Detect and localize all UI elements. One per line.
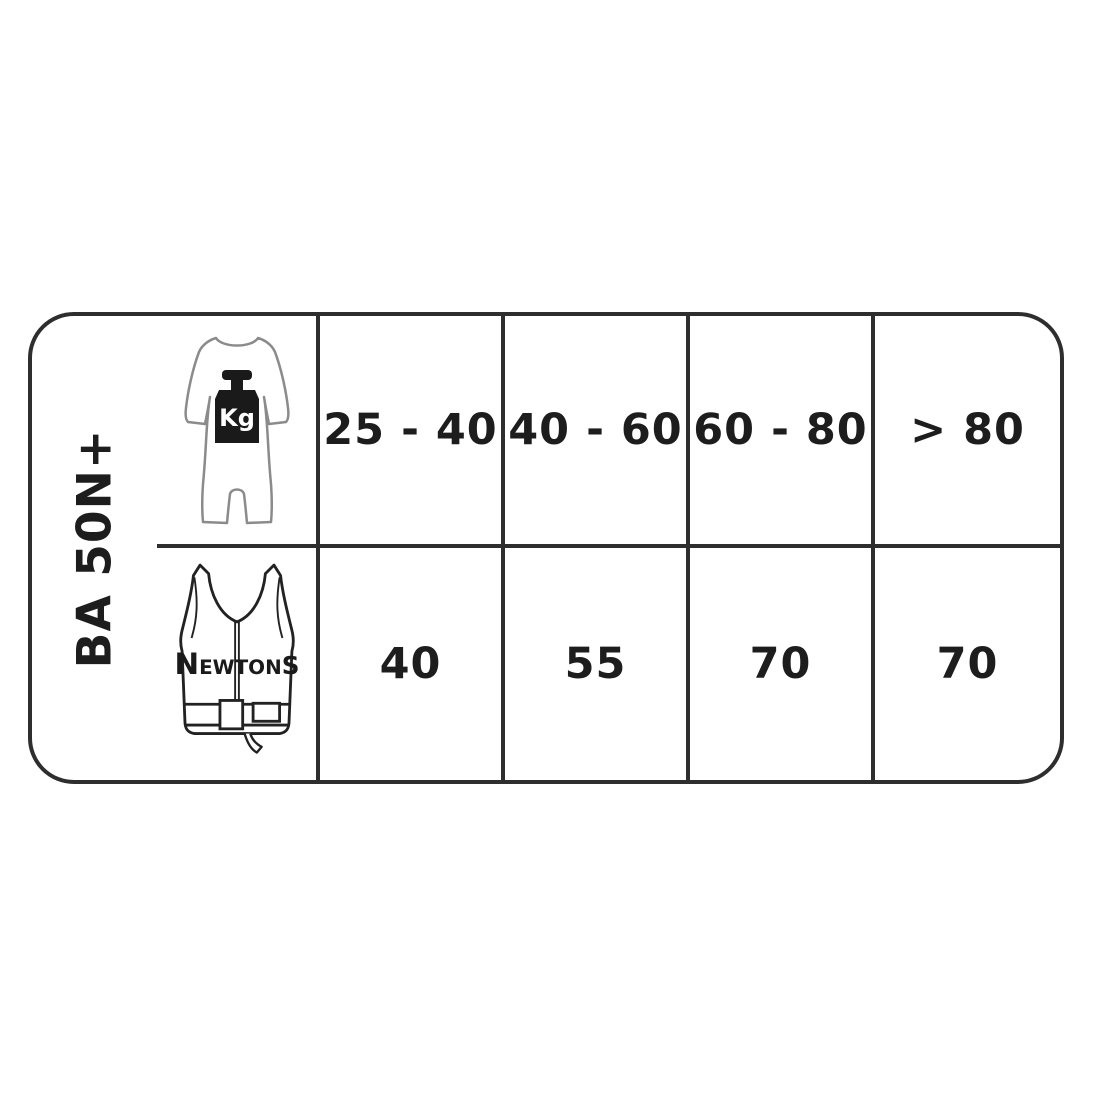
weight-range-cell: 40 - 60 xyxy=(505,316,690,548)
product-label: BA 50N+ xyxy=(67,428,122,668)
page: BA 50N+ Kg 25 - 40 40 - 60 60 - 80 > xyxy=(0,0,1100,1100)
weight-range-cell: 60 - 80 xyxy=(690,316,875,548)
weight-range-value: > 80 xyxy=(910,405,1025,455)
weight-range-cell: 25 - 40 xyxy=(320,316,505,548)
buoyancy-vest-icon: NEWTONS xyxy=(166,558,308,770)
weight-range-cell: > 80 xyxy=(875,316,1060,548)
newtons-value-cell: 70 xyxy=(690,548,875,780)
weight-header-cell: Kg xyxy=(157,316,320,548)
newtons-value-cell: 55 xyxy=(505,548,690,780)
newtons-value-cell: 70 xyxy=(875,548,1060,780)
weight-range-value: 25 - 40 xyxy=(323,405,497,455)
row-header-cell: BA 50N+ xyxy=(32,316,157,780)
newtons-value: 55 xyxy=(565,639,627,689)
newtons-value: 40 xyxy=(380,639,442,689)
newtons-header-cell: NEWTONS xyxy=(157,548,320,780)
weight-range-value: 40 - 60 xyxy=(508,405,682,455)
newtons-value: 70 xyxy=(750,639,812,689)
person-weight-kg-icon: Kg xyxy=(170,324,304,536)
buoyancy-sizing-table: BA 50N+ Kg 25 - 40 40 - 60 60 - 80 > xyxy=(28,312,1064,784)
newtons-value: 70 xyxy=(937,639,999,689)
weight-range-value: 60 - 80 xyxy=(693,405,867,455)
kg-unit-label: Kg xyxy=(219,404,255,432)
newtons-value-cell: 40 xyxy=(320,548,505,780)
